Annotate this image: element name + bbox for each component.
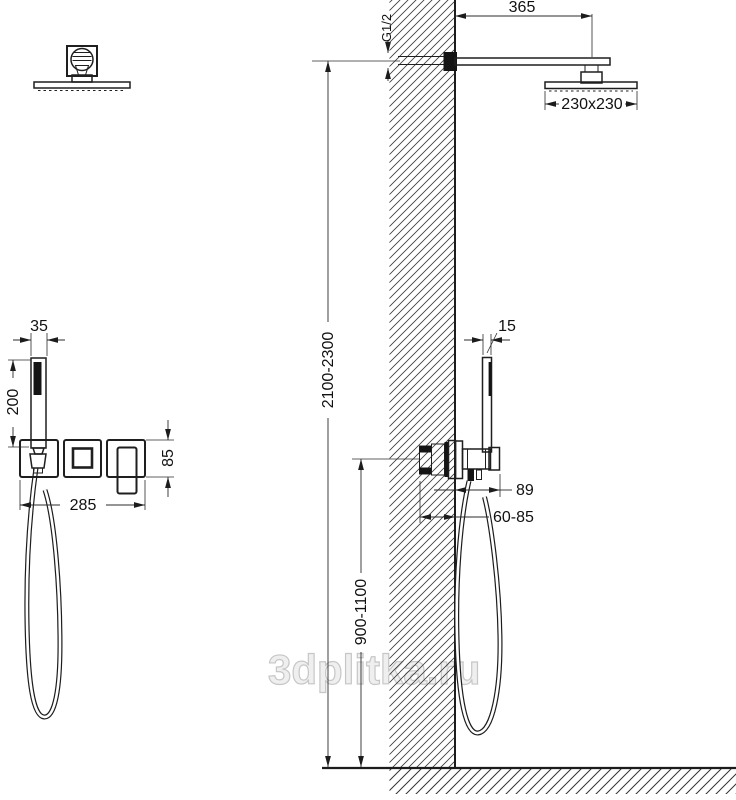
dim-handshower-width-side: 15 <box>464 318 516 355</box>
dim-head-size: 230x230 <box>545 91 637 113</box>
rain-head-front <box>34 46 130 91</box>
floor-section <box>322 768 736 794</box>
hose-outlet-side <box>468 469 475 481</box>
dim-trim-height: 85 <box>146 420 177 497</box>
svg-text:285: 285 <box>70 497 97 514</box>
svg-text:60-85: 60-85 <box>493 509 534 526</box>
svg-text:230x230: 230x230 <box>561 96 622 113</box>
svg-text:G1/2: G1/2 <box>379 14 394 42</box>
svg-text:900-1100: 900-1100 <box>353 579 370 646</box>
svg-text:200: 200 <box>5 389 22 416</box>
ball-joint-icon <box>71 49 93 71</box>
svg-text:15: 15 <box>498 318 516 335</box>
diverter-plate-front <box>73 449 92 468</box>
dim-handshower-width-front: 35 <box>13 318 65 356</box>
svg-text:35: 35 <box>30 318 48 335</box>
mixer-body-side <box>456 441 491 481</box>
svg-text:89: 89 <box>516 482 534 499</box>
dim-arm-length: 365 <box>455 0 592 57</box>
dim-handshower-length: 200 <box>5 360 31 447</box>
svg-text:2100-2300: 2100-2300 <box>320 332 337 409</box>
shower-installation-drawing: 3dplitka.ru <box>0 0 736 800</box>
svg-text:85: 85 <box>160 449 177 467</box>
wall-section <box>390 0 456 767</box>
mixer-lever-front <box>118 448 137 494</box>
rain-head-side <box>545 65 637 91</box>
dim-trim-width: 285 <box>20 480 145 514</box>
svg-text:365: 365 <box>509 0 536 16</box>
